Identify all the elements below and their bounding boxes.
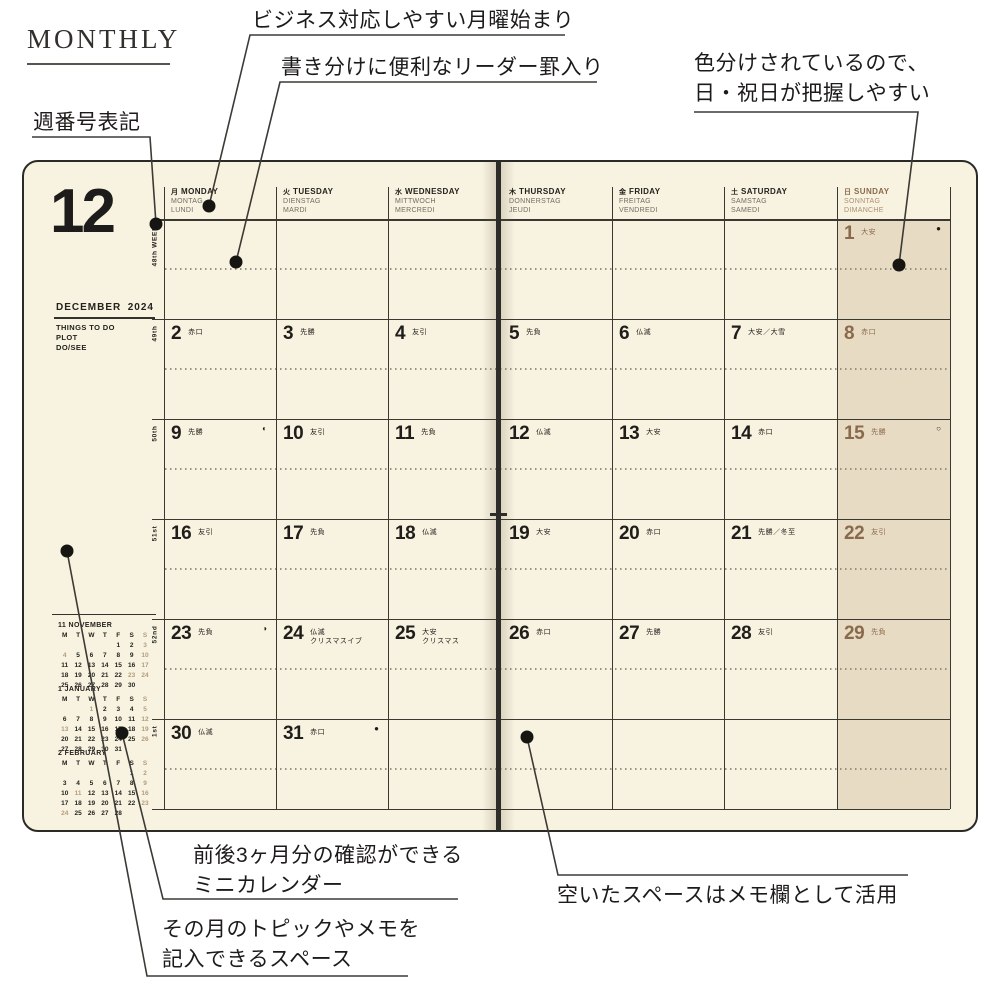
annotation-color-coded: 色分けされているので、 日・祝日が把握しやすい [694,49,930,109]
rokuyo-label: 赤口 [536,628,551,637]
calendar-day-cell: 13大安 [612,419,724,519]
weekday-kanji: 土 [731,189,738,196]
calendar-day-cell: 9先勝◐ [164,419,276,519]
weekday-fr: VENDREDI [619,206,660,215]
calendar-day-cell: 22友引 [837,519,950,619]
mini-cal-date: 17 [112,725,125,735]
day-number: 29 [844,624,864,644]
mini-cal-date: 21 [71,735,84,745]
page-title: MONTHLY [27,24,180,55]
mini-calendar: MTWTFSS123456789101112131415161718192021… [58,695,152,755]
moon-phase-icon: ● [374,725,379,733]
rokuyo-label: 先負 [310,528,325,537]
day-note: クリスマスイブ [310,638,362,645]
mini-cal-date [112,769,125,779]
day-number: 12 [509,424,529,444]
weekday-en: TUESDAY [293,187,333,196]
day-number: 28 [731,624,751,644]
day-number: 7 [731,324,741,344]
moon-phase-icon: ◐ [262,425,267,433]
rokuyo-label: 大安 [861,228,876,237]
mini-cal-date: 14 [98,661,111,671]
day-number: 27 [619,624,639,644]
annotation-mini-calendar-line2: ミニカレンダー [193,871,463,901]
weekday-header-saturday: 土 SATURDAYSAMSTAGSAMEDI [731,187,787,215]
weekday-en: WEDNESDAY [405,187,460,196]
mini-cal-date: 19 [85,799,98,809]
calendar-day-cell: 1大安● [837,219,950,319]
rokuyo-label: 先負 [198,628,213,637]
rokuyo-label: 大安／大雪 [748,328,786,337]
day-number: 4 [395,324,405,344]
mini-cal-date: 9 [138,779,151,789]
weekday-header-friday: 金 FRIDAYFREITAGVENDREDI [619,187,660,215]
mini-cal-date: 18 [125,725,138,735]
mini-cal-header: M [58,695,71,705]
day-number: 18 [395,524,415,544]
weekday-de: SONNTAG [844,197,889,206]
moon-phase-icon: ● [936,225,941,233]
weekday-kanji: 水 [395,189,402,196]
mini-cal-date: 3 [112,705,125,715]
mini-cal-header: T [71,631,84,641]
mini-cal-date: 7 [98,651,111,661]
calendar-day-cell: 3先勝 [276,319,388,419]
mini-cal-header: T [98,631,111,641]
mini-calendar-title: 11 NOVEMBER [58,622,112,629]
mini-cal-date: 22 [125,799,138,809]
weekday-de: DIENSTAG [283,197,333,206]
calendar-day-cell: 19大安 [502,519,612,619]
day-number: 22 [844,524,864,544]
leader-rule-line [165,268,949,270]
rokuyo-label: 先負 [421,428,436,437]
mini-calendar-title: 1 JANUARY [58,686,101,693]
mini-cal-date: 22 [85,735,98,745]
mini-cal-date: 16 [138,789,151,799]
day-number: 6 [619,324,629,344]
calendar-day-cell: 28友引 [724,619,837,719]
mini-cal-date: 23 [98,735,111,745]
weekday-fr: LUNDI [171,206,218,215]
rokuyo-label: 赤口 [861,328,876,337]
mini-cal-date: 15 [112,661,125,671]
calendar-day-cell: 29先負 [837,619,950,719]
mini-cal-date: 2 [138,769,151,779]
calendar-day-cell: 23先負◑ [164,619,276,719]
mini-cal-header: F [112,695,125,705]
mini-cal-date: 25 [125,735,138,745]
weekday-header-thursday: 木 THURSDAYDONNERSTAGJEUDI [509,187,566,215]
mini-cal-date: 14 [71,725,84,735]
mini-cal-header: F [112,759,125,769]
mini-cal-date [58,769,71,779]
calendar-day-cell: 17先負 [276,519,388,619]
mini-cal-header: W [85,759,98,769]
rokuyo-label: 友引 [871,528,886,537]
day-number: 15 [844,424,864,444]
day-number: 20 [619,524,639,544]
day-number: 17 [283,524,303,544]
mini-cal-date: 12 [71,661,84,671]
annotation-monday-start: ビジネス対応しやすい月曜始まり [252,6,574,36]
day-number: 11 [395,424,414,444]
mini-cal-date: 31 [112,745,125,755]
mini-cal-date: 17 [58,799,71,809]
mini-cal-date: 4 [125,705,138,715]
weekday-header-wednesday: 水 WEDNESDAYMITTWOCHMERCREDI [395,187,460,215]
mini-cal-date: 3 [138,641,151,651]
annotation-week-number: 週番号表記 [33,108,141,138]
calendar-day-cell: 10友引 [276,419,388,519]
mini-cal-date [71,769,84,779]
mini-cal-date: 20 [85,671,98,681]
todo-line: DO/SEE [56,343,115,353]
mini-cal-date: 10 [58,789,71,799]
month-name-row: DECEMBER 2024 [56,302,154,313]
mini-cal-date: 26 [85,809,98,819]
rokuyo-label: 仏滅 [422,528,437,537]
todo-line: THINGS TO DO [56,323,115,333]
weekday-de: FREITAG [619,197,660,206]
week-number-label: 50th [152,426,163,484]
mini-cal-date: 26 [138,735,151,745]
mini-cal-date [58,641,71,651]
mini-cal-date: 2 [98,705,111,715]
mini-cal-date: 13 [98,789,111,799]
week-number-label: 52nd [152,626,163,684]
mini-cal-date: 21 [112,799,125,809]
mini-calendar-rule [52,614,156,615]
moon-phase-icon: ○ [936,425,941,433]
mini-cal-header: T [98,759,111,769]
annotation-mini-calendar: 前後3ヶ月分の確認ができる ミニカレンダー [193,841,463,901]
rokuyo-label: 先勝／冬至 [758,528,796,537]
mini-cal-date: 13 [58,725,71,735]
calendar-day-cell: 7大安／大雪 [724,319,837,419]
mini-cal-date: 1 [112,641,125,651]
mini-cal-header: S [125,631,138,641]
day-number: 1 [844,224,854,244]
page-title-underline [27,63,170,65]
mini-cal-date: 18 [71,799,84,809]
mini-cal-date: 5 [71,651,84,661]
weekday-de: SAMSTAG [731,197,787,206]
mini-cal-date: 24 [58,809,71,819]
mini-cal-date: 22 [112,671,125,681]
mini-cal-date: 5 [138,705,151,715]
rokuyo-label: 仏滅クリスマスイブ [310,628,362,646]
weekday-de: MONTAG [171,197,218,206]
mini-cal-date: 16 [98,725,111,735]
month-number: 12 [50,176,113,247]
mini-cal-date: 19 [71,671,84,681]
rokuyo-label: 大安クリスマス [422,628,459,646]
calendar-day-cell: 18仏滅 [388,519,498,619]
annotation-color-coded-line2: 日・祝日が把握しやすい [694,79,930,109]
mini-cal-date: 9 [98,715,111,725]
calendar-day-cell: 4友引 [388,319,498,419]
weekday-fr: MERCREDI [395,206,460,215]
mini-cal-date [85,641,98,651]
weekday-de: DONNERSTAG [509,197,566,206]
mini-calendar: MTWTFSS123456789101112131415161718192021… [58,631,152,691]
mini-cal-date [138,745,151,755]
rokuyo-label: 先勝 [871,428,886,437]
weekday-de: MITTWOCH [395,197,460,206]
day-number: 14 [731,424,751,444]
day-number: 9 [171,424,181,444]
mini-cal-date: 10 [138,651,151,661]
planner-page: 12 DECEMBER 2024 THINGS TO DO PLOT DO/SE… [22,160,978,832]
mini-cal-date: 1 [125,769,138,779]
weekday-header-sunday: 日 SUNDAYSONNTAGDIMANCHE [844,187,889,215]
annotation-memo-space: 空いたスペースはメモ欄として活用 [557,881,898,911]
annotation-color-coded-line1: 色分けされているので、 [694,49,930,79]
day-note: クリスマス [422,638,459,645]
calendar-day-cell: 30仏滅 [164,719,276,809]
mini-cal-date [138,809,151,819]
mini-cal-date: 6 [85,651,98,661]
calendar-day-cell: 8赤口 [837,319,950,419]
mini-cal-date: 24 [112,735,125,745]
rokuyo-label: 先負 [526,328,541,337]
annotation-topic-space: その月のトピックやメモを 記入できるスペース [162,915,420,975]
mini-calendar-title: 2 FEBRUARY [58,750,106,757]
year-label: 2024 [128,302,154,313]
mini-cal-date [98,769,111,779]
rokuyo-label: 大安 [646,428,661,437]
mini-cal-date: 21 [98,671,111,681]
mini-cal-date: 3 [58,779,71,789]
day-number: 16 [171,524,191,544]
mini-cal-date: 7 [112,779,125,789]
rokuyo-label: 先負 [871,628,886,637]
mini-cal-date: 17 [138,661,151,671]
mini-cal-date: 16 [125,661,138,671]
mini-cal-header: T [71,759,84,769]
mini-cal-date: 10 [112,715,125,725]
day-number: 10 [283,424,303,444]
calendar-day-cell: 31赤口● [276,719,388,809]
day-number: 13 [619,424,639,444]
calendar-day-cell: 15先勝○ [837,419,950,519]
mini-cal-header: T [71,695,84,705]
rokuyo-label: 赤口 [758,428,773,437]
rokuyo-label: 友引 [758,628,773,637]
calendar-day-cell: 27先勝 [612,619,724,719]
day-number: 23 [171,624,191,644]
day-number: 24 [283,624,303,644]
mini-cal-date: 15 [85,725,98,735]
annotation-leader-rule: 書き分けに便利なリーダー罫入り [281,53,604,83]
mini-cal-header: S [138,631,151,641]
mini-cal-header: M [58,759,71,769]
weekday-kanji: 火 [283,189,290,196]
calendar-day-cell: 6仏滅 [612,319,724,419]
mini-cal-header: M [58,631,71,641]
mini-cal-date: 6 [58,715,71,725]
weekday-en: MONDAY [181,187,218,196]
mini-cal-date: 11 [58,661,71,671]
mini-cal-date [125,809,138,819]
mini-cal-date: 28 [112,809,125,819]
rokuyo-label: 赤口 [310,728,325,737]
calendar-day-cell: 26赤口 [502,619,612,719]
day-number: 19 [509,524,529,544]
weekday-en: SUNDAY [854,187,889,196]
weekday-kanji: 木 [509,189,516,196]
day-number: 30 [171,724,191,744]
moon-phase-icon: ◑ [262,625,267,633]
mini-cal-date: 14 [112,789,125,799]
weekday-header-monday: 月 MONDAYMONTAGLUNDI [171,187,218,215]
day-number: 21 [731,524,751,544]
mini-calendar: MTWTFSS123456789101112131415161718192021… [58,759,152,819]
rokuyo-label: 先勝 [646,628,661,637]
month-name-rule [54,317,155,319]
mini-cal-date: 7 [71,715,84,725]
calendar-day-cell: 16友引 [164,519,276,619]
mini-cal-date: 20 [98,799,111,809]
annotation-topic-space-line2: 記入できるスペース [162,945,420,975]
calendar-day-cell: 14赤口 [724,419,837,519]
day-number: 2 [171,324,181,344]
weekday-kanji: 日 [844,189,851,196]
mini-cal-date: 24 [138,671,151,681]
calendar-day-cell: 11先負 [388,419,498,519]
week-number-label: 1st [152,726,163,784]
day-number: 3 [283,324,293,344]
rokuyo-label: 仏滅 [198,728,213,737]
grid-line [950,187,951,809]
rokuyo-label: 仏滅 [636,328,651,337]
mini-cal-header: S [125,759,138,769]
annotation-topic-space-line1: その月のトピックやメモを [162,915,420,945]
mini-cal-date: 5 [85,779,98,789]
weekday-en: FRIDAY [629,187,660,196]
weekday-fr: DIMANCHE [844,206,889,215]
calendar-day-cell: 21先勝／冬至 [724,519,837,619]
mini-cal-date: 8 [125,779,138,789]
mini-cal-date: 12 [138,715,151,725]
mini-cal-header: S [125,695,138,705]
calendar-day-cell: 5先負 [502,319,612,419]
mini-cal-date: 4 [58,651,71,661]
mini-cal-date: 11 [125,715,138,725]
product-feature-image: MONTHLY ビジネス対応しやすい月曜始まり 書き分けに便利なリーダー罫入り … [0,0,1000,1000]
mini-cal-date: 20 [58,735,71,745]
calendar-day-cell: 2赤口 [164,319,276,419]
mini-cal-date: 11 [71,789,84,799]
mini-cal-date: 8 [112,651,125,661]
mini-cal-date: 29 [112,681,125,691]
calendar-day-cell: 20赤口 [612,519,724,619]
mini-cal-date: 19 [138,725,151,735]
mini-cal-header: S [138,695,151,705]
mini-cal-date: 6 [98,779,111,789]
weekday-kanji: 金 [619,189,626,196]
weekday-fr: SAMEDI [731,206,787,215]
grid-line [152,219,950,221]
rokuyo-label: 友引 [412,328,427,337]
mini-cal-date: 12 [85,789,98,799]
mini-cal-date: 18 [58,671,71,681]
rokuyo-label: 赤口 [646,528,661,537]
day-number: 8 [844,324,854,344]
mini-cal-date [125,745,138,755]
mini-cal-header: S [138,759,151,769]
mini-cal-date: 23 [138,799,151,809]
week-number-label: 51st [152,526,163,584]
mini-cal-date: 15 [125,789,138,799]
mini-cal-date [85,769,98,779]
mini-cal-date: 2 [125,641,138,651]
mini-cal-date: 27 [98,809,111,819]
calendar-day-cell: 24仏滅クリスマスイブ [276,619,388,719]
month-name: DECEMBER [56,302,121,313]
mini-cal-date: 25 [71,809,84,819]
weekday-kanji: 月 [171,189,178,196]
rokuyo-label: 大安 [536,528,551,537]
rokuyo-label: 先勝 [188,428,203,437]
mini-cal-date: 8 [85,715,98,725]
mini-cal-date: 23 [125,671,138,681]
week-number-label: 49th [152,326,163,384]
mini-cal-header: W [85,631,98,641]
weekday-fr: MARDI [283,206,333,215]
day-number: 26 [509,624,529,644]
todo-line: PLOT [56,333,115,343]
weekday-header-tuesday: 火 TUESDAYDIENSTAGMARDI [283,187,333,215]
day-number: 25 [395,624,415,644]
mini-cal-date: 13 [85,661,98,671]
mini-cal-date: 30 [125,681,138,691]
calendar-day-cell: 12仏滅 [502,419,612,519]
mini-cal-header: W [85,695,98,705]
mini-cal-date: 1 [85,705,98,715]
weekday-en: SATURDAY [741,187,787,196]
todo-block: THINGS TO DO PLOT DO/SEE [56,323,115,353]
weekday-en: THURSDAY [519,187,566,196]
rokuyo-label: 仏滅 [536,428,551,437]
calendar-day-cell: 25大安クリスマス [388,619,498,719]
mini-cal-date [138,681,151,691]
rokuyo-label: 友引 [198,528,213,537]
day-number: 31 [283,724,303,744]
mini-cal-header: F [112,631,125,641]
rokuyo-label: 赤口 [188,328,203,337]
mini-cal-header: T [98,695,111,705]
mini-cal-date [58,705,71,715]
mini-cal-date [98,641,111,651]
weekday-fr: JEUDI [509,206,566,215]
grid-line [152,809,950,810]
day-number: 5 [509,324,519,344]
mini-cal-date: 4 [71,779,84,789]
mini-cal-date [71,641,84,651]
week-number-label: 48th WEEK [152,226,163,284]
rokuyo-label: 先勝 [300,328,315,337]
mini-cal-date: 9 [125,651,138,661]
mini-cal-date [71,705,84,715]
rokuyo-label: 友引 [310,428,325,437]
annotation-mini-calendar-line1: 前後3ヶ月分の確認ができる [193,841,463,871]
